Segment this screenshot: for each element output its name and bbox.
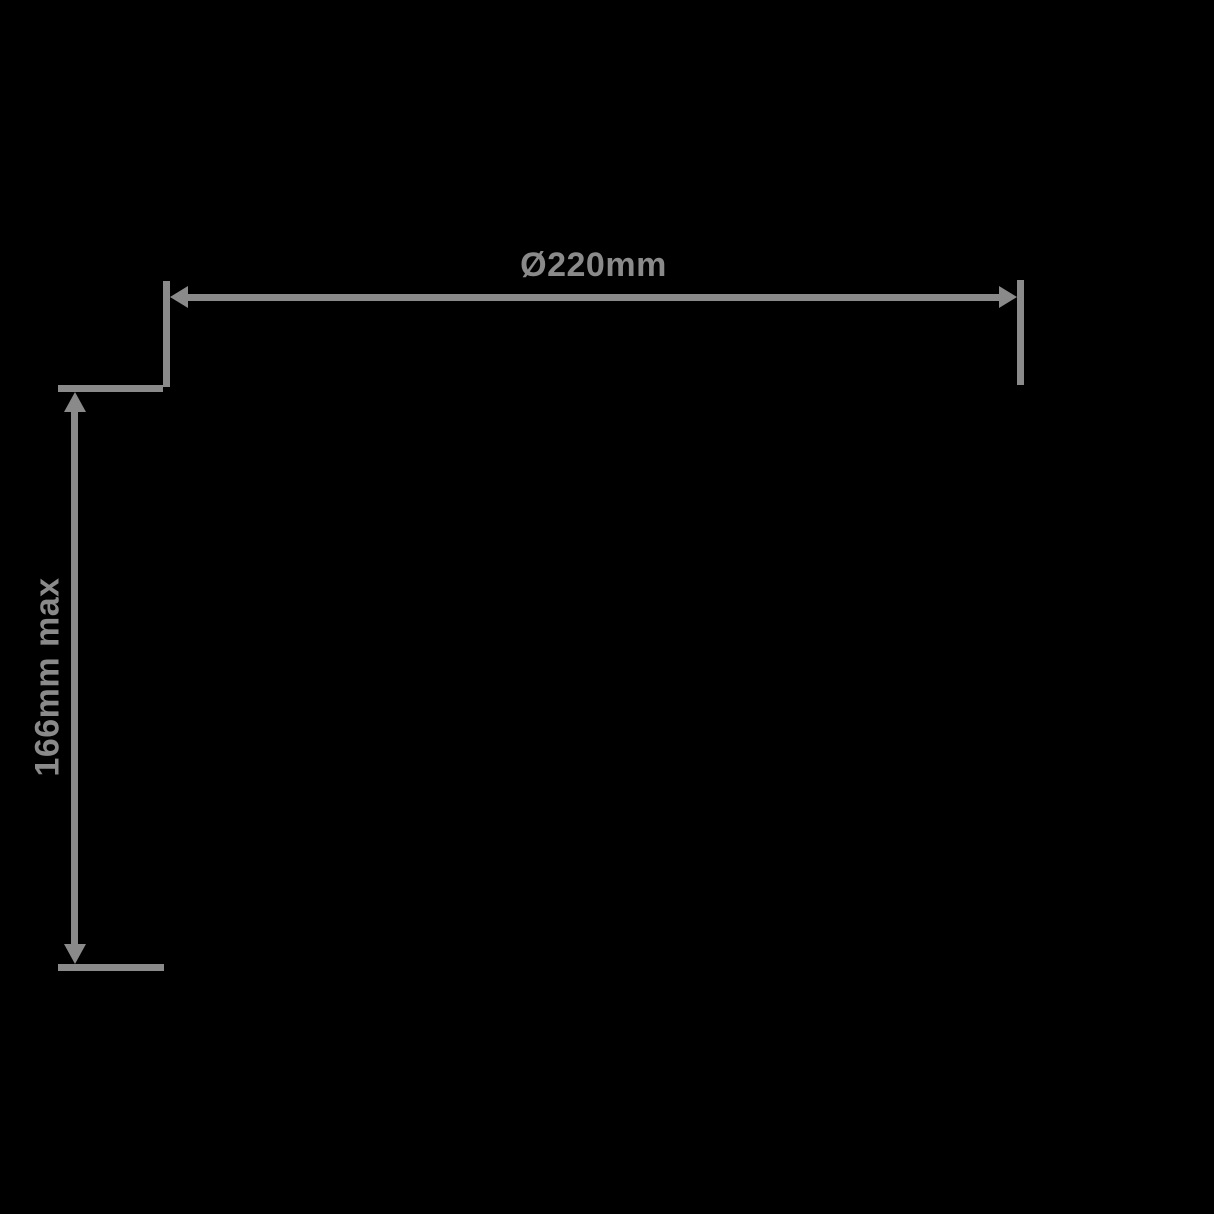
width-extension-line-right <box>1017 280 1024 385</box>
height-extension-line-top <box>58 385 163 392</box>
left-arrowhead-icon <box>170 286 188 308</box>
right-arrowhead-icon <box>999 286 1017 308</box>
height-dimension-line <box>71 410 78 946</box>
up-arrowhead-icon <box>64 392 86 412</box>
width-extension-line-left <box>163 281 170 387</box>
width-dimension-label: Ø220mm <box>170 246 1017 285</box>
height-extension-line-bottom <box>58 964 164 971</box>
width-dimension-line <box>184 294 999 301</box>
down-arrowhead-icon <box>64 944 86 964</box>
dimension-diagram: Ø220mm 166mm max <box>0 0 1214 1214</box>
height-dimension-label: 166mm max <box>29 577 68 776</box>
